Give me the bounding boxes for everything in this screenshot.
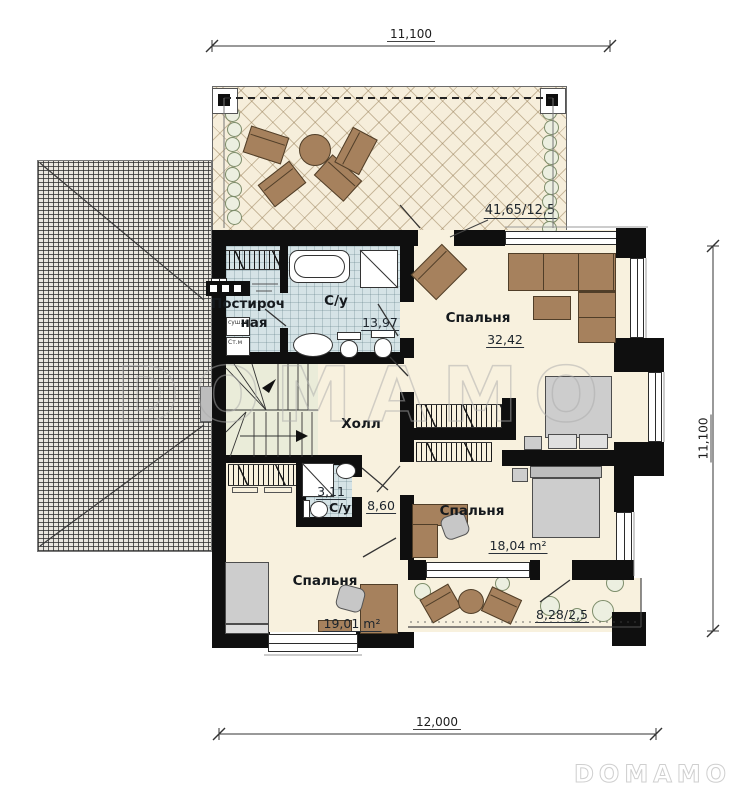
bathtub-icon [289, 250, 350, 283]
bush-icon [592, 600, 614, 622]
toilet-icon [310, 501, 328, 518]
bedroom-right-area: 18,04 m² [489, 538, 548, 554]
bed-icon [225, 562, 269, 624]
coffee-table-icon [533, 296, 571, 320]
window-bedroom-left [268, 634, 358, 652]
terrace-table-icon [299, 134, 331, 166]
bathroom-main-label: С/у [324, 293, 348, 309]
wall-segment [400, 338, 414, 358]
wall-segment [614, 476, 634, 512]
wall-segment [356, 632, 414, 648]
wardrobe-hangers [224, 250, 284, 270]
wardrobe-hangers [416, 442, 492, 462]
wall-segment [280, 246, 288, 293]
toilet-icon [371, 330, 395, 338]
wall-segment [502, 398, 516, 440]
shower-icon [360, 250, 398, 288]
dimension-top: 11,100 [387, 27, 435, 42]
nightstand-icon [524, 436, 542, 450]
wall-segment [212, 632, 270, 648]
bush-icon [227, 182, 242, 197]
bedroom-right-label: Спальня [440, 503, 505, 519]
sink-icon [293, 333, 333, 357]
bush-icon [225, 137, 240, 152]
closet-shelf [232, 487, 258, 493]
bed-bench-icon [225, 624, 269, 634]
wall-corner-column [612, 612, 646, 646]
roof-hatch-area [37, 160, 212, 552]
laundry-label-1: Постироч [211, 296, 285, 312]
bay-window [648, 372, 662, 442]
wall-segment [572, 560, 634, 580]
dimension-bottom: 12,000 [413, 715, 461, 730]
bed-icon [530, 466, 602, 478]
bush-icon [227, 210, 242, 225]
vent-block [206, 281, 250, 296]
staircase [226, 364, 318, 457]
terrace-area-label: 41,65/12,5 [484, 203, 557, 219]
laundry-label-2: ная [240, 315, 267, 331]
window-top-right [505, 231, 618, 245]
balcony-area-label: 8,28/2,5 [535, 607, 589, 623]
sofa-icon [578, 291, 616, 343]
window-bedroom-right [426, 562, 530, 578]
bush-icon [225, 196, 240, 211]
watermark-small: DOMAMO [574, 760, 731, 788]
pillow-icon [548, 434, 577, 449]
bush-icon [227, 122, 242, 137]
bathroom-small-label: С/у [329, 500, 351, 515]
wall-segment [614, 338, 664, 372]
nightstand-icon [512, 468, 528, 482]
window-right-upper [630, 258, 644, 338]
bush-icon [544, 150, 559, 165]
bay-window-floor [632, 372, 648, 442]
wall-segment [530, 560, 540, 580]
bed-icon [532, 478, 600, 538]
wall-segment [454, 230, 505, 246]
wardrobe-hangers [228, 464, 296, 486]
hall-area: 8,60 [366, 498, 396, 514]
desk-icon [412, 524, 438, 558]
toilet-icon [374, 338, 392, 358]
wardrobe-hangers [416, 404, 502, 428]
washer-label: Ст.м [228, 339, 242, 346]
wall-segment [280, 328, 288, 354]
bathroom-small-area: 3,11 [316, 484, 346, 500]
floor-plan: 41,65/12,5 [0, 0, 734, 800]
bed-icon [545, 376, 612, 438]
bush-icon [542, 165, 557, 180]
bush-icon [542, 135, 557, 150]
wall-segment [212, 230, 418, 246]
wall-segment [400, 392, 414, 462]
dimension-right: 11,100 [697, 415, 712, 463]
bedroom-left-area: 19,01 m² [323, 616, 382, 632]
bush-icon [544, 180, 559, 195]
wall-segment [408, 560, 426, 580]
wall-segment [212, 296, 226, 648]
balcony-table-icon [458, 589, 484, 614]
toilet-icon [337, 332, 361, 340]
bedroom-large-area: 32,42 [486, 332, 524, 348]
pillow-icon [579, 434, 608, 449]
wall-corner-column [616, 228, 646, 258]
bush-icon [544, 120, 559, 135]
washer-box: Ст.м [226, 337, 250, 356]
terrace-column [540, 88, 566, 114]
bedroom-left-label: Спальня [293, 573, 358, 589]
toilet-icon [340, 340, 358, 358]
toilet-icon [303, 500, 310, 518]
wall-segment [414, 428, 516, 440]
bush-icon [227, 152, 242, 167]
bush-icon [225, 167, 240, 182]
terrace-column [212, 88, 238, 114]
sink-icon [336, 463, 356, 479]
bathroom-main-area: 13,97 [361, 315, 399, 331]
wall-segment [352, 497, 362, 527]
wall-segment [502, 450, 634, 466]
wall-segment [212, 230, 226, 278]
hall-label: Холл [341, 416, 380, 432]
sofa-icon [508, 253, 616, 291]
closet-shelf [264, 487, 292, 493]
bedroom-large-label: Спальня [446, 310, 511, 326]
